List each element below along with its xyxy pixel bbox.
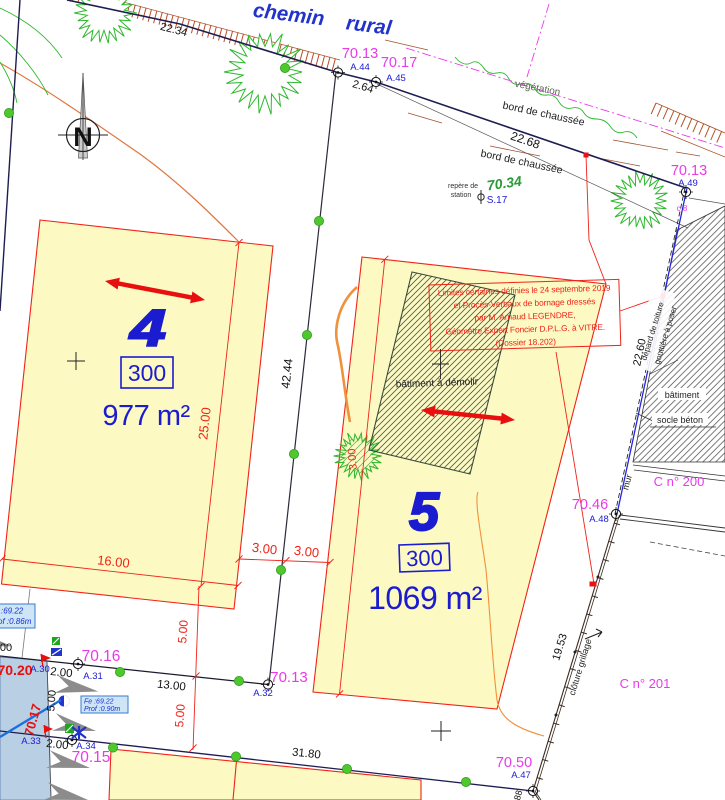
svg-text:5.00: 5.00 <box>172 703 188 728</box>
svg-text:300: 300 <box>128 360 166 386</box>
svg-text:A.33: A.33 <box>21 736 41 747</box>
svg-text:70.16: 70.16 <box>82 648 121 665</box>
svg-text:A.47: A.47 <box>511 770 531 781</box>
svg-text:70.13: 70.13 <box>342 46 378 62</box>
svg-text:A.31: A.31 <box>83 671 103 682</box>
svg-text:5.00: 5.00 <box>45 690 58 712</box>
svg-text:70.50: 70.50 <box>496 755 532 771</box>
svg-text:70.17: 70.17 <box>381 55 417 71</box>
svg-text:70.46: 70.46 <box>572 497 608 513</box>
svg-text:repère de: repère de <box>448 183 478 190</box>
svg-text:70.15: 70.15 <box>72 749 111 766</box>
svg-text:4: 4 <box>129 300 166 357</box>
svg-text:of :0.86m: of :0.86m <box>0 617 32 626</box>
svg-text:A.48: A.48 <box>589 514 609 525</box>
svg-text:C n° 200: C n° 200 <box>654 474 705 489</box>
svg-text:Prof :0.90m: Prof :0.90m <box>84 706 120 713</box>
svg-text:5.00: 5.00 <box>175 619 191 644</box>
svg-text:Fe :69.22: Fe :69.22 <box>84 699 114 706</box>
svg-text:2.00: 2.00 <box>50 666 74 680</box>
svg-text:1069 m²: 1069 m² <box>368 580 483 616</box>
svg-text:bâtiment: bâtiment <box>665 390 700 400</box>
svg-text:A.45: A.45 <box>386 73 406 84</box>
svg-text:977 m²: 977 m² <box>102 400 190 432</box>
svg-text:3.00: 3.00 <box>346 448 360 470</box>
svg-text:A.30: A.30 <box>30 664 50 675</box>
svg-text:5: 5 <box>409 482 440 542</box>
svg-text:300: 300 <box>406 545 444 571</box>
svg-text:2.00: 2.00 <box>46 738 70 752</box>
svg-text:A.49: A.49 <box>678 178 698 189</box>
svg-text:3.00: 3.00 <box>251 540 278 558</box>
svg-text::69.22: :69.22 <box>1 607 24 616</box>
svg-text:3.00: 3.00 <box>293 543 320 561</box>
svg-text:socle béton: socle béton <box>657 415 703 425</box>
svg-text:c.8: c.8 <box>677 204 688 213</box>
svg-text:A.32: A.32 <box>253 688 273 699</box>
svg-text:A.44: A.44 <box>350 62 370 73</box>
svg-text:S.17: S.17 <box>487 195 508 206</box>
svg-text:00: 00 <box>0 642 12 654</box>
svg-text:N: N <box>73 122 93 152</box>
svg-text:70.13: 70.13 <box>270 669 308 686</box>
svg-text:(Dossier 18.202): (Dossier 18.202) <box>495 336 556 348</box>
svg-text:C n° 201: C n° 201 <box>620 676 671 691</box>
svg-text:station: station <box>451 192 472 199</box>
svg-text:70.20: 70.20 <box>0 662 33 678</box>
svg-text:70.13: 70.13 <box>671 163 707 179</box>
